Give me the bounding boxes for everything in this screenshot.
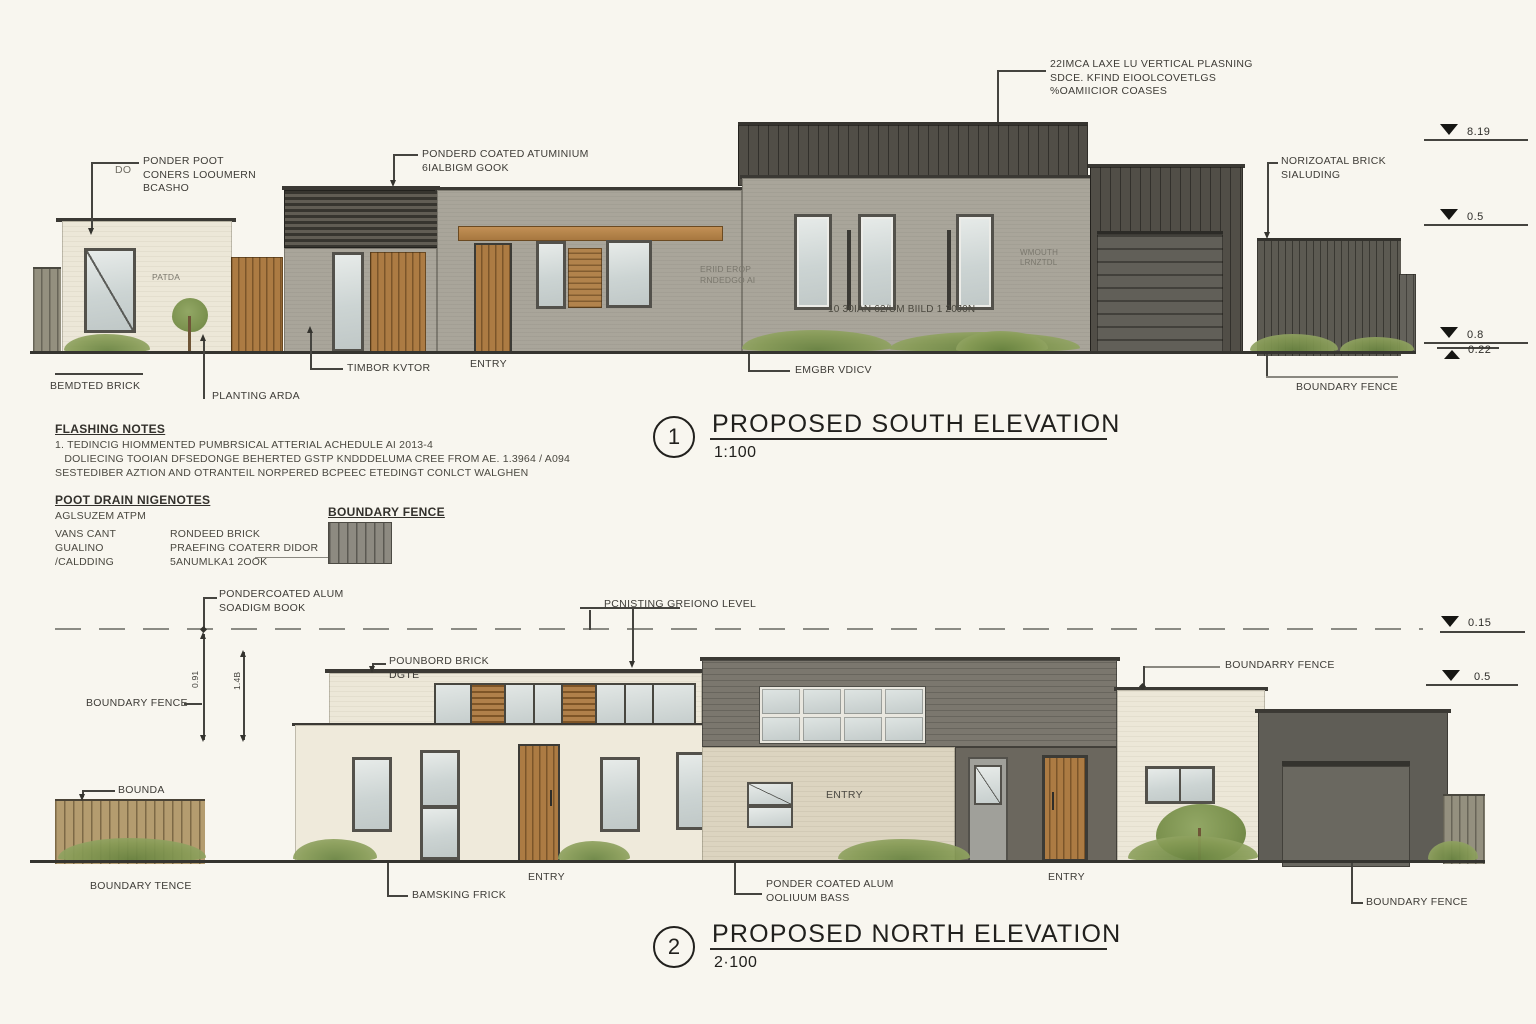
leader-powder-bottom-h [734,893,762,895]
south-ground-line [30,351,1416,354]
dim-line-a [203,634,205,740]
dim-b-value: 1.4B [232,672,243,690]
leader-planting-arrow [200,334,206,341]
callout-entry-south: ENTRY [470,358,507,372]
level-marker-icon [1440,124,1458,135]
existing-symbol-bar [580,607,680,609]
pergola-beam [458,226,723,241]
window-mullion [1179,769,1181,801]
grid-pane [762,717,800,742]
south-left-fence [33,267,61,354]
leader-boundary-s-h [1266,376,1398,378]
south-building-c-batten-1 [847,230,851,310]
south-building-c-window-2 [858,214,896,310]
legend-rule [255,557,330,558]
dim-a-arrow-top [200,632,206,639]
callout-cladding-note: 22IMCA LAXE LU VERTICAL PLASNING SDCE. K… [1050,58,1253,99]
south-title-scale: 1:100 [714,444,757,462]
leader-boundary-br-h [1351,902,1363,904]
grid-pane [844,689,882,714]
clerestory-glass [654,685,694,723]
level-value: 0.15 [1468,617,1491,629]
leader-powder-bottom-v [734,863,736,894]
leader-timber-note-v [748,354,750,371]
leader-powder-post-v [91,162,93,228]
dim-a-value: 0.91 [190,671,201,688]
leader-powder-alum-arrow [390,180,396,187]
leader-bounda-arrow [79,794,85,801]
level-value: 0.5 [1474,671,1491,683]
roof-drain-sub: AGLSUZEM ATPM [55,509,146,523]
grid-pane [844,717,882,742]
leader-powder-alum-v [393,154,395,182]
north-entry-door-right [1042,755,1088,862]
existing-ground-dashed-line [55,628,1423,630]
level-marker-icon [1441,616,1459,627]
door-handle [550,790,552,806]
roof-drain-title: POOT DRAIN NIGENOTES [55,493,210,507]
clerestory-glass [626,685,652,723]
callout-boundary-left: BOUNDARY FENCE [86,697,188,711]
level-marker-icon-up [1444,350,1460,359]
entry-wall-text: ENTRY [826,789,863,803]
level-line [1424,224,1528,226]
leader-bounda-h [82,790,115,792]
callout-boundary-bl: BOUNDARY TENCE [90,880,192,894]
grid-pane [803,717,841,742]
clerestory-timber-slats [472,685,504,723]
grid-pane [885,689,923,714]
north-ground-line [30,860,1485,863]
south-title: PROPOSED SOUTH ELEVATION [712,410,1121,439]
leader-cladding-h [997,70,1046,72]
callout-powder-alum: PONDERD COATED ATUMINIUM 6IALBIGM GOOK [422,148,589,175]
level-marker-icon [1440,327,1458,338]
architectural-sheet: PATDA ERIID EROP RNDEDGO AI 10 30IAN 62/… [0,0,1536,1024]
callout-boundary-fence-south: BOUNDARY FENCE [1296,381,1398,395]
legend-fence-title: BOUNDARY FENCE [328,505,445,519]
south-building-c-window-3 [956,214,994,310]
leader-horiz-brick-arrow [1264,232,1270,239]
level-line [1440,631,1525,633]
door-handle [1052,792,1054,810]
leader-boundary-br-v [1351,863,1353,904]
callout-bounda: BOUNDA [118,784,165,798]
callout-powder-post-prefix: DO [115,164,131,178]
leader-powder-post-h [91,162,139,164]
north-window-3 [600,757,640,832]
grid-pane [803,689,841,714]
south-glazed-door [332,252,364,352]
south-garage-door [1097,231,1223,354]
leader-timber-door-h [310,368,343,370]
north-window-1 [352,757,392,832]
callout-timber-door: TIMBOR KVTOR [347,362,430,376]
leader-cladding-v [997,70,999,122]
leader-horiz-brick-v [1267,162,1269,234]
north-title-scale: 2·100 [714,954,757,972]
clerestory-glass [506,685,532,723]
north-garage-door [1282,761,1410,867]
flashing-notes-body: 1. TEDINCIG HIOMMENTED PUMBRSICAL ATTERI… [55,438,615,481]
leader-timber-door-arrow [307,326,313,333]
leader-horiz-brick-h [1267,162,1278,164]
leader-timber-note-h [748,370,790,372]
callout-horiz-brick: NORIZOATAL BRICK SIALUDING [1281,155,1386,182]
callout-powder-top: PONDERCOATED ALUM SOADIGM BOOK [219,588,344,615]
north-title-rule [710,948,1107,950]
clerestory-glass [535,685,561,723]
south-timber-slat-panel [568,248,602,308]
callout-entry-mid: ENTRY [528,871,565,885]
callout-bamsking: BAMSKING FRICK [412,889,506,903]
south-title-number: 1 [653,416,695,458]
dim-a-arrow-bottom [200,735,206,742]
window-note-text: WMOUTH LRNZTDL [1020,248,1058,269]
grid-pane [885,717,923,742]
clerestory-timber-slats [563,685,595,723]
level-marker-icon [1440,209,1458,220]
south-building-a-window [84,248,136,333]
south-building-b-window-2 [606,240,652,308]
callout-existing-level: PCNISTING GREIONO LEVEL [604,598,756,612]
existing-symbol-v [632,607,634,663]
leader-boundary-s-v [1266,354,1268,377]
north-small-window-upper [747,782,793,806]
north-title-number: 2 [653,926,695,968]
leader-bamsking-v [387,863,389,896]
leader-powder-alum-h [393,154,418,156]
level-value: 0.22 [1468,344,1491,356]
leader-painted-brick-h [372,663,386,665]
leader-bamsking-h [387,895,408,897]
south-entry-door [474,243,512,353]
callout-entry-right: ENTRY [1048,871,1085,885]
level-value: 8.19 [1467,126,1490,138]
south-small-tree-trunk [188,316,191,353]
leader-boundarry-h [1143,666,1220,668]
leader-painted-brick-arrow [369,666,375,673]
callout-powder-bottom: PONDER COATED ALUM OOLIUUM BASS [766,878,894,905]
dim-line-b [243,652,245,740]
south-timber-gate [370,252,426,352]
callout-painted-brick: POUNBORD BRICK DGTE [389,655,489,682]
south-timber-fence [231,257,283,353]
level-line [1426,684,1518,686]
leader-powder-post-arrow [88,228,94,235]
flashing-notes-title: FLASHING NOTES [55,422,165,436]
north-clerestory-band [436,685,694,723]
leader-boundary-left [184,703,202,705]
callout-powder-post: PONDER POOT CONERS LOOUMERN BCASHO [143,155,256,196]
leader-existing-v [589,610,591,630]
dim-b-arrow-bottom [240,735,246,742]
callout-planting: PLANTING ARDA [212,390,300,404]
north-window-grid [759,686,926,744]
callout-boundarry-right: BOUNDARRY FENCE [1225,659,1335,673]
level-value: 0.5 [1467,211,1484,223]
grid-pane [762,689,800,714]
roof-note-text: ERIID EROP RNDEDGO AI [700,264,755,286]
north-small-window-lower [747,806,793,828]
north-window-2-upper [420,750,460,808]
south-building-c-window-1 [794,214,832,310]
leader-timber-door-v [310,332,312,369]
louvre-screen [284,190,438,248]
level-marker-icon [1442,670,1460,681]
north-entry-door-mid [518,744,560,862]
callout-boundary-br: BOUNDARY FENCE [1366,896,1468,910]
level-line [1424,139,1528,141]
boundary-fence-swatch [328,522,392,564]
clerestory-glass [597,685,623,723]
wall-note-text: 10 30IAN 62/UM BIILD 1 20J0N [828,303,975,316]
leader-bedded-brick [55,373,143,375]
clerestory-glass [436,685,470,723]
existing-symbol-arrow [629,661,635,668]
north-window-2-lower [420,806,460,860]
dim-b-arrow-top [240,650,246,657]
patio-text: PATDA [152,272,180,283]
callout-bedded-brick: BEMDTED BRICK [50,380,140,394]
legend-column-2: RONDEED BRICK PRAEFING COATERR DIDOR 5AN… [170,527,318,570]
callout-timber-note: EMGBR VDICV [795,364,872,378]
north-grey-door-pane [974,765,1002,805]
south-building-b-window-1 [536,241,566,309]
north-title: PROPOSED NORTH ELEVATION [712,920,1121,949]
south-building-c-batten-2 [947,230,951,310]
legend-column-1: VANS CANT GUALINO /CALDDING [55,527,116,570]
leader-planting-v [203,340,205,399]
south-title-rule [710,438,1107,440]
leader-powder-top-h [203,597,217,599]
level-value: 0.8 [1467,329,1484,341]
